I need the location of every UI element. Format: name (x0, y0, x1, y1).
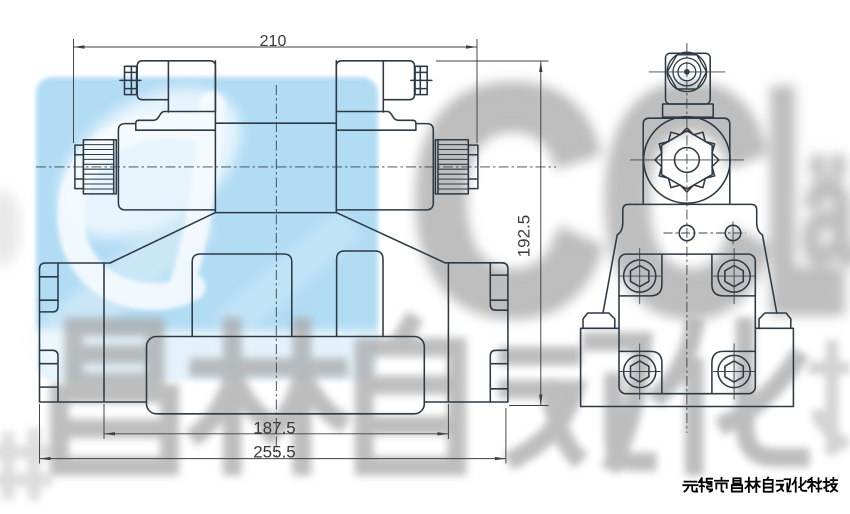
svg-text:C: C (411, 24, 603, 376)
svg-text:192.5: 192.5 (515, 215, 534, 258)
svg-text:255.5: 255.5 (253, 443, 296, 462)
svg-text:är: är (802, 126, 850, 294)
svg-text:187.5: 187.5 (253, 418, 296, 437)
svg-text:210: 210 (260, 33, 287, 50)
